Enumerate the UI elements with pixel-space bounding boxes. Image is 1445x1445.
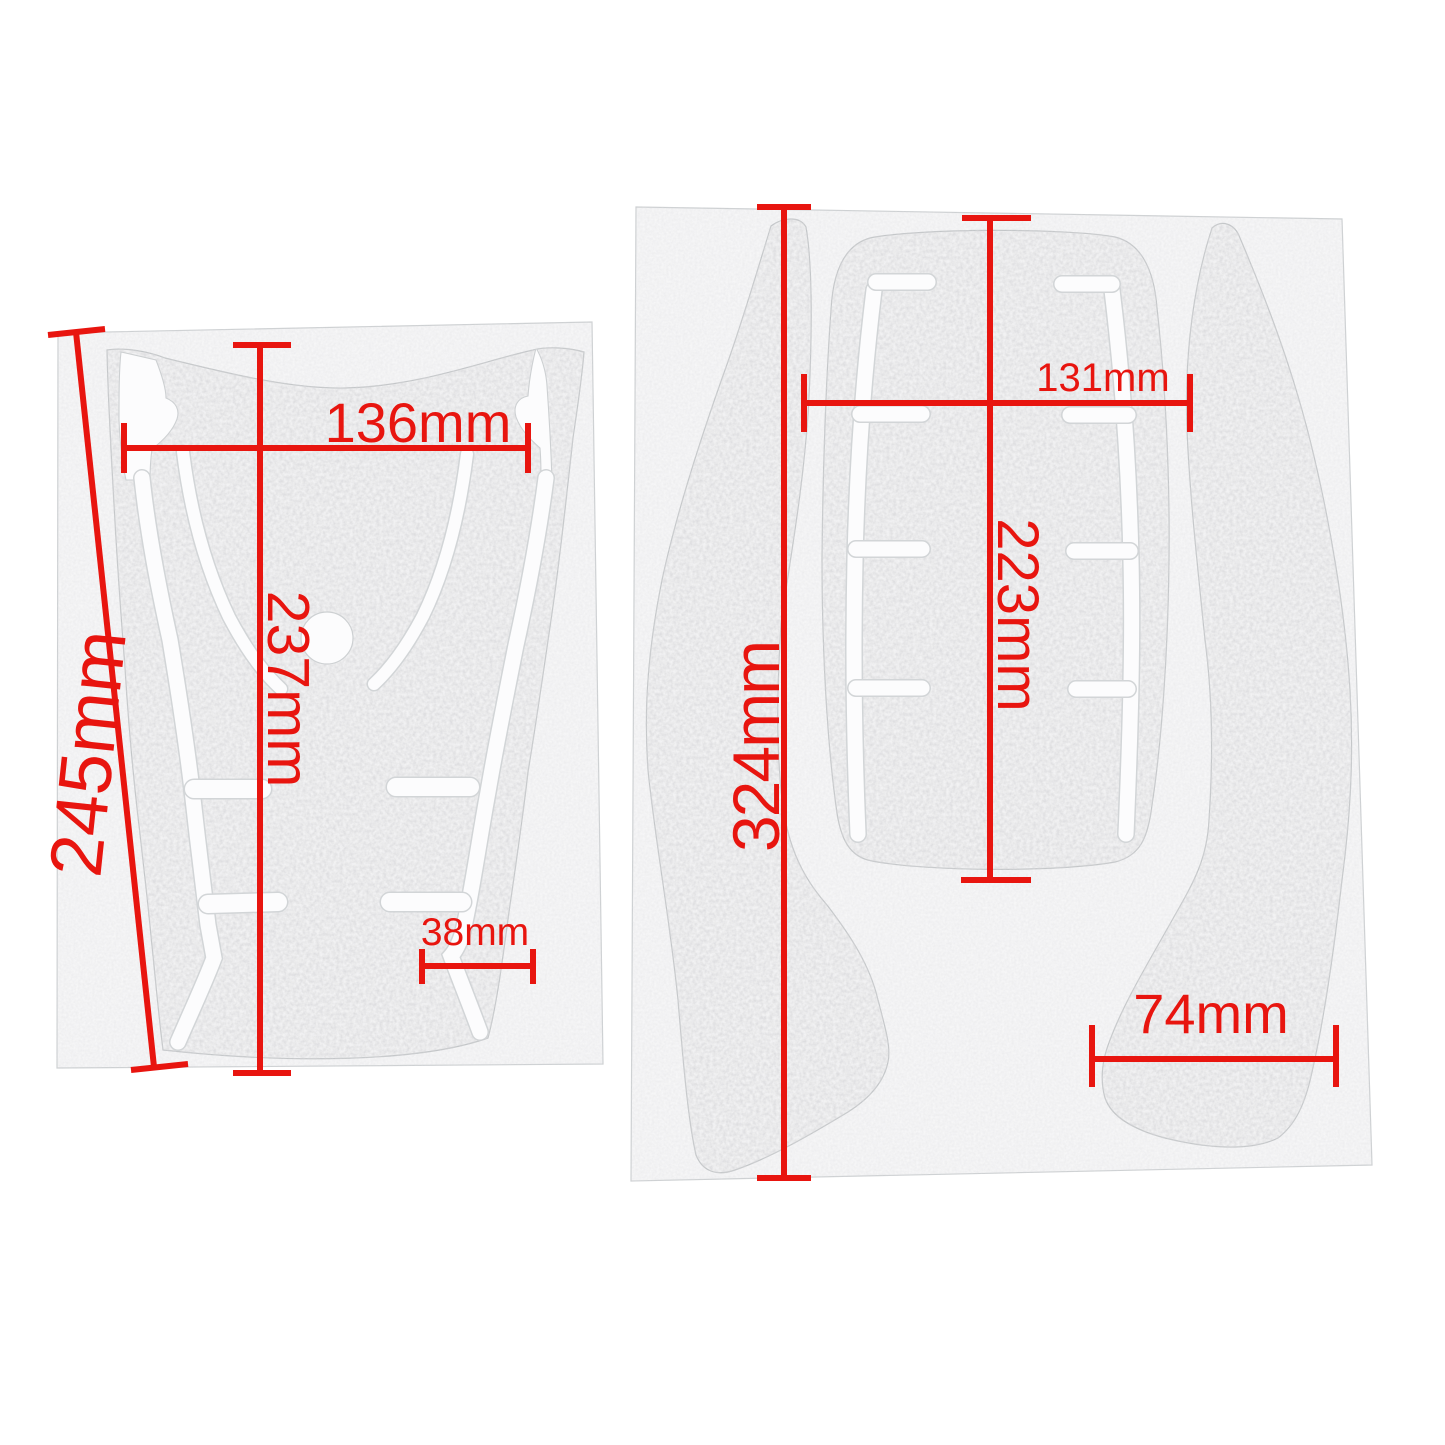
- svg-text:38mm: 38mm: [421, 911, 529, 954]
- svg-text:223mm: 223mm: [985, 518, 1050, 711]
- svg-text:237mm: 237mm: [255, 591, 321, 788]
- svg-text:324mm: 324mm: [719, 642, 793, 852]
- svg-text:136mm: 136mm: [325, 391, 512, 454]
- svg-text:131mm: 131mm: [1036, 356, 1169, 400]
- svg-text:74mm: 74mm: [1133, 982, 1289, 1045]
